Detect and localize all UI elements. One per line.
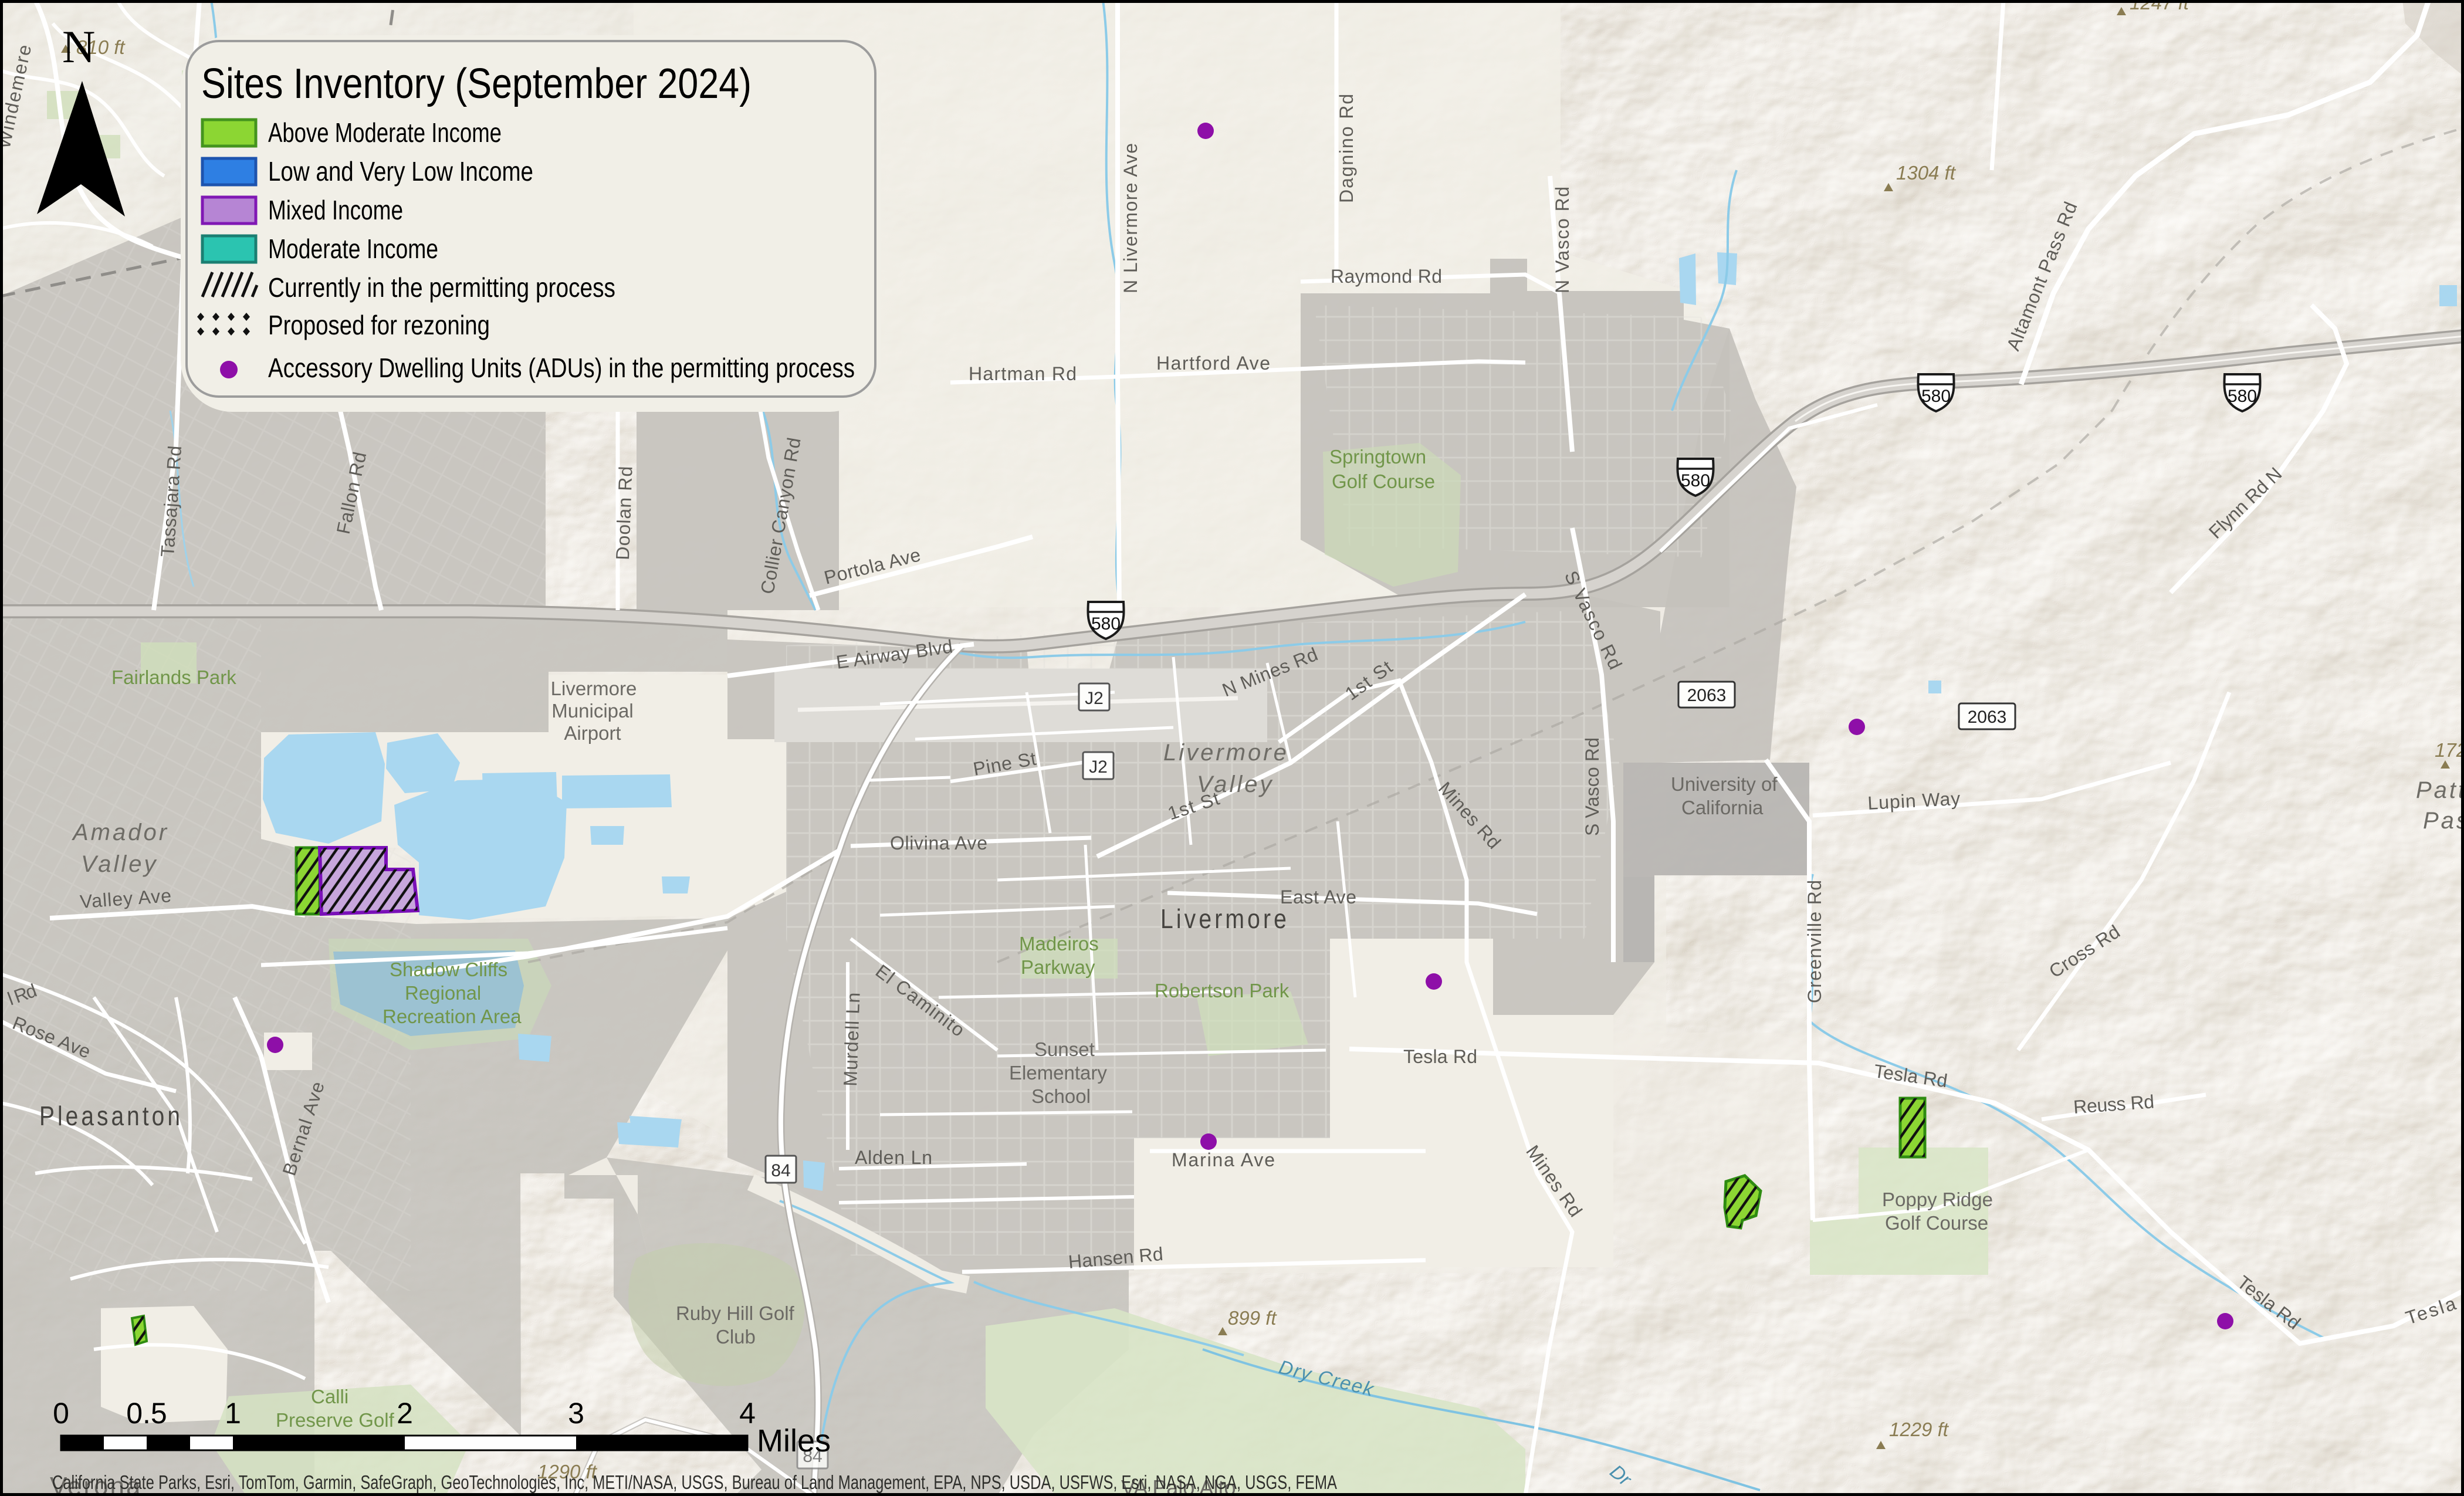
svg-text:Tesla Rd: Tesla Rd (1403, 1046, 1477, 1067)
svg-text:1726: 1726 (2435, 739, 2464, 761)
svg-text:Miles: Miles (757, 1423, 831, 1458)
svg-text:84: 84 (771, 1161, 790, 1180)
svg-text:Livermore: Livermore (1163, 740, 1289, 766)
svg-text:Raymond Rd: Raymond Rd (1331, 266, 1442, 287)
svg-text:N: N (62, 21, 95, 72)
svg-text:899 ft: 899 ft (1228, 1307, 1277, 1329)
svg-text:Recreation Area: Recreation Area (383, 1006, 522, 1027)
svg-text:0: 0 (53, 1397, 69, 1430)
svg-text:Airport: Airport (564, 722, 621, 744)
svg-text:Municipal: Municipal (551, 700, 633, 722)
svg-text:Golf Course: Golf Course (1885, 1212, 1988, 1234)
svg-text:Madeiros: Madeiros (1019, 933, 1099, 955)
svg-text:Parkway: Parkway (1021, 956, 1095, 978)
svg-text:Murdell Ln: Murdell Ln (840, 992, 864, 1087)
svg-text:2063: 2063 (1687, 686, 1727, 705)
svg-text:3: 3 (568, 1397, 584, 1430)
svg-text:Shadow Cliffs: Shadow Cliffs (390, 959, 507, 980)
svg-text:Greenville Rd: Greenville Rd (1804, 880, 1825, 1003)
svg-text:East Ave: East Ave (1280, 886, 1356, 908)
svg-text:4: 4 (739, 1397, 756, 1430)
svg-text:Fairlands Park: Fairlands Park (111, 666, 236, 688)
svg-text:Valley: Valley (1197, 771, 1274, 797)
svg-text:Hartman Rd: Hartman Rd (969, 363, 1077, 384)
svg-text:Hartford Ave: Hartford Ave (1156, 353, 1270, 374)
svg-text:0.5: 0.5 (126, 1397, 167, 1430)
svg-text:California: California (1681, 797, 1764, 818)
svg-text:J2: J2 (1085, 689, 1104, 708)
svg-text:Poppy Ridge: Poppy Ridge (1882, 1189, 1993, 1210)
svg-text:2063: 2063 (1968, 708, 2007, 727)
svg-text:Pleasanton: Pleasanton (39, 1101, 183, 1131)
svg-text:J2: J2 (1089, 757, 1108, 777)
svg-text:Livermore: Livermore (1160, 903, 1289, 934)
svg-text:Moderate Income: Moderate Income (268, 233, 438, 264)
svg-text:580: 580 (1091, 614, 1121, 634)
svg-text:Dagnino Rd: Dagnino Rd (1336, 94, 1357, 203)
svg-text:580: 580 (1681, 471, 1710, 490)
svg-text:Proposed for rezoning: Proposed for rezoning (268, 310, 490, 340)
svg-text:Patte: Patte (2416, 777, 2464, 803)
svg-text:School: School (1031, 1085, 1091, 1107)
svg-text:Springtown: Springtown (1329, 446, 1426, 468)
svg-text:Currently in the permitting pr: Currently in the permitting process (268, 272, 615, 303)
svg-text:Accessory Dwelling Units (ADUs: Accessory Dwelling Units (ADUs) in the p… (268, 353, 855, 383)
svg-text:Sunset: Sunset (1034, 1038, 1095, 1060)
svg-text:580: 580 (2228, 387, 2257, 406)
svg-text:N Livermore Ave: N Livermore Ave (1120, 143, 1141, 293)
svg-text:1: 1 (225, 1397, 241, 1430)
svg-text:Elementary: Elementary (1009, 1062, 1107, 1084)
svg-text:Pas: Pas (2423, 808, 2464, 834)
svg-text:Club: Club (716, 1326, 756, 1348)
svg-text:Above Moderate Income: Above Moderate Income (268, 117, 502, 148)
svg-text:California State Parks, Esri,: California State Parks, Esri, TomTom, Ga… (52, 1471, 1337, 1493)
svg-text:Robertson Park: Robertson Park (1155, 980, 1289, 1001)
svg-text:Livermore: Livermore (551, 678, 637, 699)
svg-text:Preserve Golf: Preserve Golf (276, 1409, 395, 1431)
svg-text:1229 ft: 1229 ft (1889, 1419, 1949, 1440)
svg-text:Alden Ln: Alden Ln (855, 1147, 932, 1168)
svg-text:Mixed Income: Mixed Income (268, 195, 403, 225)
svg-text:University of: University of (1671, 773, 1778, 795)
svg-text:Low and Very Low Income: Low and Very Low Income (268, 156, 533, 187)
svg-text:Golf Course: Golf Course (1332, 471, 1435, 492)
svg-text:Valley: Valley (81, 851, 158, 877)
svg-text:2: 2 (397, 1397, 413, 1430)
svg-text:Amador: Amador (72, 820, 169, 845)
svg-text:Olivina Ave: Olivina Ave (890, 832, 987, 854)
svg-text:S Vasco Rd: S Vasco Rd (1582, 737, 1603, 836)
svg-text:1304 ft: 1304 ft (1896, 162, 1957, 184)
svg-text:580: 580 (1921, 387, 1951, 406)
svg-text:Calli: Calli (311, 1386, 348, 1407)
svg-text:Ruby Hill Golf: Ruby Hill Golf (676, 1302, 795, 1324)
svg-text:Regional: Regional (405, 982, 481, 1004)
svg-text:Sites Inventory (September 202: Sites Inventory (September 2024) (201, 60, 752, 107)
